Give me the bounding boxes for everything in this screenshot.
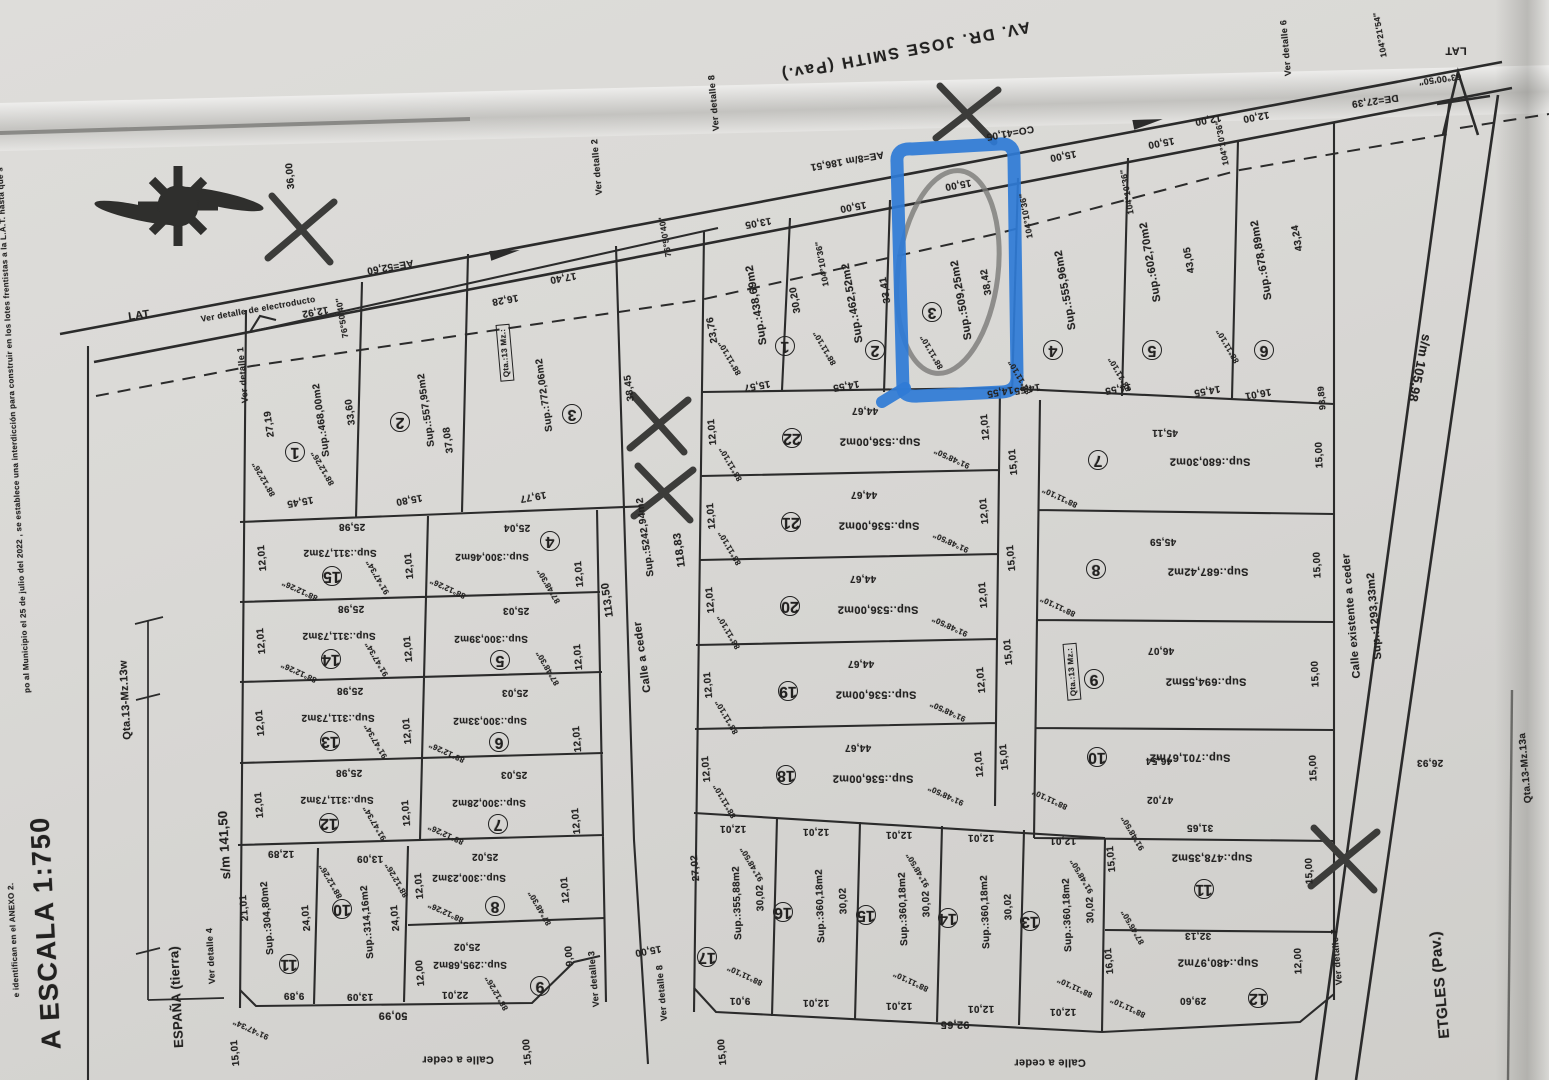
map-label: 91°48′50″ (933, 446, 971, 469)
lot-number-badge: 2 (390, 412, 410, 432)
map-label: 44,67 (845, 742, 872, 752)
map-label: Sup.:536,00m2 (840, 436, 921, 447)
map-label: 92,65 (940, 1019, 969, 1030)
scanned-survey-map: AV. DR. JOSE SMITH (Pav.)AE=8/m 186,51CO… (0, 0, 1549, 1080)
map-labels-layer: AV. DR. JOSE SMITH (Pav.)AE=8/m 186,51CO… (0, 0, 1549, 1080)
map-label: Sup.:311,73m2 (302, 630, 375, 640)
street-label-south-west: Calle a ceder (422, 1054, 494, 1065)
lot-number-badge: 14 (938, 908, 958, 928)
lot-number-badge: 1 (285, 442, 305, 462)
map-label: Sup.:678,89m2 (1250, 219, 1275, 301)
map-label: 25,04 (504, 522, 531, 532)
lot-number-badge: 9 (530, 976, 550, 996)
map-label: 12,01 (254, 791, 266, 818)
map-label: 15,80 (395, 492, 423, 506)
map-label: 91°48′50″ (739, 845, 765, 882)
map-label: 12,01 (401, 799, 413, 826)
map-label: 12,01 (706, 502, 718, 529)
map-label: 88°11′10″ (1031, 787, 1069, 810)
map-label: 15,00 (717, 1038, 729, 1065)
map-label: 32,13 (1185, 930, 1212, 940)
map-label: 12,01 (403, 635, 415, 662)
map-label: 25,98 (336, 767, 363, 777)
map-label: 12,01 (705, 586, 717, 613)
map-label: 43,24 (1291, 224, 1305, 252)
map-label: 88°11′10″ (1109, 995, 1147, 1018)
map-label: 12,01 (976, 666, 988, 693)
map-label: 88°12′26″ (318, 862, 344, 899)
map-label: 15,00 (1315, 442, 1326, 469)
map-label: 33,41 (879, 276, 893, 304)
lot-number-badge: 14 (321, 649, 341, 669)
map-label: 12,01 (968, 832, 995, 842)
map-label: 88°11′10″ (892, 969, 930, 992)
map-label: 91°48′50″ (905, 851, 931, 888)
map-label: 88°11′10″ (717, 530, 743, 567)
map-label: 88°11′10″ (1215, 328, 1241, 365)
map-label: 25,03 (501, 769, 528, 779)
map-label: 118,83 (672, 532, 688, 568)
map-label: 76°50′40″ (657, 216, 672, 257)
map-label: 16,28 (491, 292, 519, 306)
map-label: 12,01 (886, 1000, 913, 1010)
map-label: s/m 105,98 (1406, 333, 1433, 403)
map-label: 15,00 (1313, 552, 1324, 579)
map-label: 38,45 (623, 374, 637, 402)
map-label: 27,02 (690, 854, 702, 881)
map-label: 30,02 (839, 888, 850, 915)
map-label: 12,01 (404, 552, 416, 579)
map-label: 91°48′50″ (929, 699, 967, 722)
map-label: Sup.:701,67m2 (1150, 752, 1231, 763)
map-label: 16,01 (1104, 947, 1116, 974)
map-label: 15,01 (1106, 845, 1118, 872)
map-label: 15,00 (1049, 148, 1077, 162)
map-label: 15,00 (944, 177, 972, 191)
map-label: 12,01 (255, 709, 267, 736)
map-label: Sup.:536,00m2 (833, 773, 914, 784)
map-label: Qta.13-Mz.13a (1518, 732, 1534, 803)
map-label: Sup.:300,28m2 (452, 797, 526, 807)
map-label: 45,59 (1150, 536, 1177, 546)
map-label: Sup.:360,18m2 (980, 875, 993, 949)
map-label: 91°48′50″ (932, 530, 970, 553)
lot-number-badge: 20 (780, 596, 800, 616)
lot-number-badge: 16 (773, 902, 793, 922)
map-label: 88°12′26″ (428, 740, 466, 763)
lot-number-badge: 13 (320, 731, 340, 751)
map-label: 13,09 (347, 991, 374, 1001)
lot-number-badge: 22 (782, 428, 802, 448)
map-label: 15,00 (1309, 755, 1320, 782)
map-label: 91°48′50″ (1069, 857, 1095, 894)
map-label: 88°11′10″ (1056, 975, 1094, 998)
lot-number-badge: 15 (856, 905, 876, 925)
map-label: 45,11 (1152, 427, 1178, 437)
lot-number-badge: 9 (1084, 669, 1104, 689)
map-label: 91°48′50″ (927, 783, 965, 806)
map-label: Sup.:1293,33m2 (1366, 572, 1385, 660)
map-label: 15,01 (999, 743, 1011, 770)
street-label-east: ETGLES (Pav.) (1428, 931, 1452, 1040)
map-label: 16,01 (1244, 386, 1272, 400)
map-label: 12,00 (1242, 109, 1270, 123)
map-label: 13,09 (357, 853, 384, 863)
lot-number-badge: 10 (1087, 747, 1107, 767)
lot-number-badge: 1 (775, 336, 795, 356)
map-label: 91°47′34″ (364, 640, 390, 677)
map-label: 12,89 (268, 848, 295, 858)
map-label: 44,67 (851, 489, 878, 499)
map-label: Sup.:536,00m2 (839, 520, 920, 531)
map-label: Ver detalle 4 (205, 928, 217, 985)
map-label: 88°12′26″ (281, 578, 319, 601)
lot-number-badge: 11 (1194, 879, 1214, 899)
map-label: 25,03 (502, 687, 529, 697)
map-label: 50,99 (378, 1010, 407, 1021)
lot-number-badge: 5 (1142, 340, 1162, 360)
map-label: Sup.:555,96m2 (1054, 249, 1079, 331)
map-label: Sup.:314,16m2 (360, 885, 376, 960)
map-label: 12,01 (701, 755, 713, 782)
map-label: 12,01 (574, 560, 586, 587)
lot-number-badge: 12 (319, 813, 339, 833)
lat-label-west: LAT (128, 309, 151, 323)
map-label: 88°11′10″ (1039, 594, 1077, 617)
map-label: Sup.:300,23m2 (432, 872, 506, 882)
map-label: 15,01 (1006, 544, 1018, 571)
map-label: 27,19 (263, 410, 277, 438)
map-label: Sup.:680,30m2 (1170, 456, 1251, 467)
map-label: Sup.:694,55m2 (1166, 676, 1247, 687)
map-label: Sup.:468,00m2 (312, 383, 332, 458)
map-label: 9,01 (730, 995, 751, 1005)
map-label: 23,76 (706, 316, 720, 344)
map-label: 36,00 (285, 162, 297, 189)
street-label-south-east: Calle a ceder (1014, 1057, 1086, 1068)
lot-number-badge: 7 (488, 814, 508, 834)
map-label: Sup.:536,00m2 (836, 689, 917, 700)
map-label: 25,02 (454, 941, 481, 951)
map-label: Sup.:772,06m2 (535, 358, 555, 433)
map-label: Qta.13-Mz.13w (118, 660, 133, 740)
lot-number-badge: 10 (332, 899, 352, 919)
lot-number-badge: 21 (781, 512, 801, 532)
map-label: 12,01 (886, 829, 913, 839)
map-label: 30,02 (922, 891, 933, 918)
map-label: 88°11′10″ (1041, 485, 1079, 508)
map-label: 104°10′36″ (814, 241, 830, 287)
map-label: 113,50 (600, 582, 616, 618)
map-label: 24,01 (390, 904, 402, 931)
map-label: 98,89 (1316, 386, 1327, 411)
map-label: 12,01 (257, 544, 269, 571)
map-label: Sup.:5242,94m2 (635, 497, 656, 577)
map-label: 44,67 (850, 573, 877, 583)
map-label: Ver detalle 8 (707, 74, 721, 131)
map-label: 12,01 (707, 418, 719, 445)
map-label: 9,89 (284, 990, 305, 1000)
map-label: 12,01 (402, 717, 414, 744)
map-label: 15,00 (1311, 661, 1322, 688)
map-label: 88°11′10″ (712, 783, 738, 820)
map-label: 91°48′50″ (931, 614, 969, 637)
lat-label-east: LAT (1445, 45, 1466, 56)
map-label: 12,01 (978, 581, 990, 608)
map-label: 12,01 (968, 1003, 995, 1013)
map-label: 29,60 (1180, 995, 1207, 1005)
map-label: 12,00 (415, 959, 427, 986)
map-label: 88°12′26″ (251, 460, 277, 497)
map-label: Sup.:295,68m2 (433, 959, 507, 969)
map-label: 87°46′50″ (1120, 908, 1146, 945)
map-label: Sup.:536,00m2 (838, 604, 919, 615)
map-label: Sup.:311,73m2 (300, 794, 373, 804)
map-label: Sup.:360,18m2 (815, 869, 828, 943)
lot-number-badge: 7 (1088, 450, 1108, 470)
scale-label: A ESCALA 1:750 (26, 816, 65, 1051)
map-label: 37,08 (442, 426, 456, 454)
lot-number-badge: 4 (1043, 340, 1063, 360)
map-label: AE=52,60 (366, 257, 414, 275)
map-label: Qta.:13 Mz.: (496, 324, 515, 382)
lot-number-badge: 15 (322, 566, 342, 586)
lot-number-badge: 2 (865, 340, 885, 360)
map-label: 25,98 (337, 685, 364, 695)
map-label: 88°11′10″ (812, 330, 838, 367)
map-label: 104°10′36″ (1214, 120, 1230, 166)
map-label: 12,01 (256, 627, 268, 654)
map-label: Ver detalle 3 (587, 950, 601, 1007)
map-label: 12,01 (571, 807, 583, 834)
map-label: 88°12′26″ (427, 900, 465, 923)
map-label: 88°11′10″ (717, 340, 743, 377)
map-label: s/m 141,50 (216, 810, 233, 879)
lot-number-badge: 5 (490, 650, 510, 670)
map-label: 13,05 (744, 215, 772, 229)
map-label: 14,55 (986, 384, 1014, 398)
map-label: 15,45 (286, 494, 314, 508)
map-label: Sup.:300,46m2 (455, 551, 529, 561)
map-label: Sup.:360,18m2 (898, 872, 911, 946)
map-label: 76°50′40″ (334, 297, 349, 338)
map-label: 12,01 (803, 997, 830, 1007)
map-label: 88°11′10″ (919, 334, 945, 371)
map-label: 15,01 (230, 1039, 242, 1066)
map-label: 24,01 (301, 904, 313, 931)
map-label: 12,01 (1050, 835, 1077, 845)
map-label: 87°48′30″ (535, 649, 561, 686)
lot-number-badge: 19 (778, 681, 798, 701)
map-label: 91°47′34″ (362, 804, 388, 841)
map-label: 15,00 (634, 943, 662, 957)
map-label: 88°12′26″ (280, 660, 318, 683)
map-label: 33,60 (344, 398, 358, 426)
map-label: po al Municipio el 25 de julio del 2022 … (0, 167, 32, 693)
lot-number-badge: 12 (1248, 988, 1268, 1008)
map-label: 14,55 (1193, 383, 1221, 397)
map-label: 12,00 (1294, 948, 1305, 975)
map-label: 91°47′34″ (232, 1017, 270, 1040)
map-label: 15,01 (1008, 448, 1020, 475)
map-label: 12,01 (703, 671, 715, 698)
map-label: Ver detalle 6 (1279, 19, 1293, 76)
lot-number-badge: 3 (562, 404, 582, 424)
street-label-avenue: AV. DR. JOSE SMITH (Pav.) (779, 18, 1032, 82)
map-label: Sup.:311,73m2 (303, 547, 376, 557)
map-label: 88°12′26″ (429, 576, 467, 599)
map-label: 14,55 (832, 378, 860, 392)
map-label: 30,20 (789, 286, 803, 314)
lot-number-badge: 8 (485, 896, 505, 916)
map-label: 31,65 (1187, 822, 1214, 832)
map-label: 88°11′10″ (714, 699, 740, 736)
map-label: Sup.:360,18m2 (1062, 878, 1075, 952)
lot-number-badge: 18 (776, 765, 796, 785)
map-label: 12,01 (573, 643, 585, 670)
map-label: 91°48′50″ (1120, 814, 1146, 851)
map-label: Sup.:478,35m2 (1172, 852, 1253, 863)
map-label: 38,42 (980, 268, 994, 296)
map-label: 15,00 (1147, 135, 1175, 149)
lot-number-badge: 4 (540, 531, 560, 551)
map-label: 12,01 (979, 497, 991, 524)
map-label: 104°10′36″ (1119, 169, 1135, 215)
map-label: 88°12′26″ (484, 974, 510, 1011)
map-label: 22,01 (442, 989, 469, 999)
map-label: Sup.:300,39m2 (454, 633, 528, 643)
map-label: 25,98 (339, 521, 366, 531)
map-label: Sup.:355,88m2 (732, 866, 745, 940)
map-label: 9,00 (564, 945, 576, 966)
map-label: Sup.:304,80m2 (260, 881, 276, 956)
map-label: 104°21′54″ (1372, 12, 1388, 58)
map-label: 26,93 (1417, 757, 1444, 767)
map-label: DE=27,39 (1351, 92, 1399, 108)
map-label: Sup.:462,52m2 (841, 262, 866, 344)
map-label: 46,07 (1148, 645, 1175, 655)
lot-number-badge: 13 (1020, 911, 1040, 931)
map-label: 17,40 (549, 270, 577, 284)
lot-number-badge: 6 (1254, 340, 1274, 360)
map-label: 88°11′10″ (716, 614, 742, 651)
map-label: Ver detalle de electroducto (200, 295, 316, 324)
map-label: Ver detalle 1 (236, 346, 250, 403)
map-label: 12,01 (1050, 1006, 1077, 1016)
map-label: Sup.:557,95m2 (417, 373, 437, 448)
map-label: 47,02 (1147, 794, 1174, 804)
map-label: 12,01 (974, 750, 986, 777)
map-label: Sup.:311,73m2 (301, 712, 374, 722)
map-label: 88°11′10″ (726, 963, 764, 986)
map-label: 30,02 (1086, 897, 1097, 924)
map-label: Qta.:13 Mz.: (1063, 643, 1082, 701)
map-label: 87°48′30″ (536, 567, 562, 604)
map-label: 104°10′36″ (1018, 193, 1034, 239)
map-label: 30,02 (756, 885, 767, 912)
map-label: 25,03 (503, 605, 530, 615)
map-label: 88°11′10″ (718, 446, 744, 483)
map-label: 88°12′26″ (384, 861, 410, 898)
map-label: 12,01 (572, 725, 584, 752)
map-label: 12,01 (414, 872, 426, 899)
street-label-existing: Calle existente a ceder (1341, 553, 1363, 679)
street-label-west: ESPAÑA (tierra) (167, 946, 185, 1049)
map-label: Sup.:438,69m2 (745, 264, 770, 346)
map-label: 12,01 (803, 826, 830, 836)
map-label: 88°12′26″ (427, 822, 465, 845)
street-label-central: Calle a ceder (633, 621, 654, 694)
lot-number-badge: 6 (489, 732, 509, 752)
map-label: e identifican en el ANEXO 2. (7, 882, 21, 997)
map-label: 12,01 (980, 413, 992, 440)
map-label: 15,57 (743, 378, 771, 392)
map-label: 87°48′30″ (527, 889, 553, 926)
map-label: Ver detalle 8 (655, 964, 669, 1021)
map-label: 43,05 (1183, 246, 1197, 274)
map-label: 30,02 (1004, 894, 1015, 921)
map-label: 44,67 (852, 405, 879, 415)
highlighted-lot-number: 3 (922, 302, 942, 322)
map-label: 15,00 (522, 1038, 534, 1065)
map-label: CO=41,05 (985, 123, 1034, 141)
map-label: 15,00 (839, 199, 867, 213)
map-label: 44,67 (848, 658, 875, 668)
map-label: 91°47′34″ (363, 722, 389, 759)
map-label: 15,00 (1305, 858, 1316, 885)
map-label: 91°47′34″ (365, 558, 391, 595)
lot-number-badge: 11 (279, 954, 299, 974)
map-label: 12,01 (720, 823, 747, 833)
map-label: 15,01 (1003, 638, 1015, 665)
map-label: Sup.:602,70m2 (1139, 221, 1164, 303)
map-label: 63°00′50″ (1418, 72, 1462, 87)
map-label: Ver detalle 2 (590, 138, 604, 195)
map-label: 25,98 (338, 603, 365, 613)
map-label: 25,02 (472, 851, 499, 861)
map-label: AE=8/m 186,51 (810, 149, 885, 172)
lot-number-badge: 17 (697, 947, 717, 967)
map-label: 12,01 (560, 876, 572, 903)
highlighted-lot-area: Sup.:509,25m2 (950, 259, 975, 341)
map-label: 21,01 (239, 894, 251, 921)
map-label: 19,77 (519, 489, 547, 503)
map-label: Ver detalle 7 (1330, 928, 1344, 985)
map-label: 12,92 (301, 304, 329, 318)
map-label: Sup.:480,97m2 (1178, 957, 1259, 968)
map-label: Sup.:687,42m2 (1168, 566, 1249, 577)
map-label: Sup.:300,33m2 (453, 715, 527, 725)
lot-number-badge: 8 (1086, 559, 1106, 579)
